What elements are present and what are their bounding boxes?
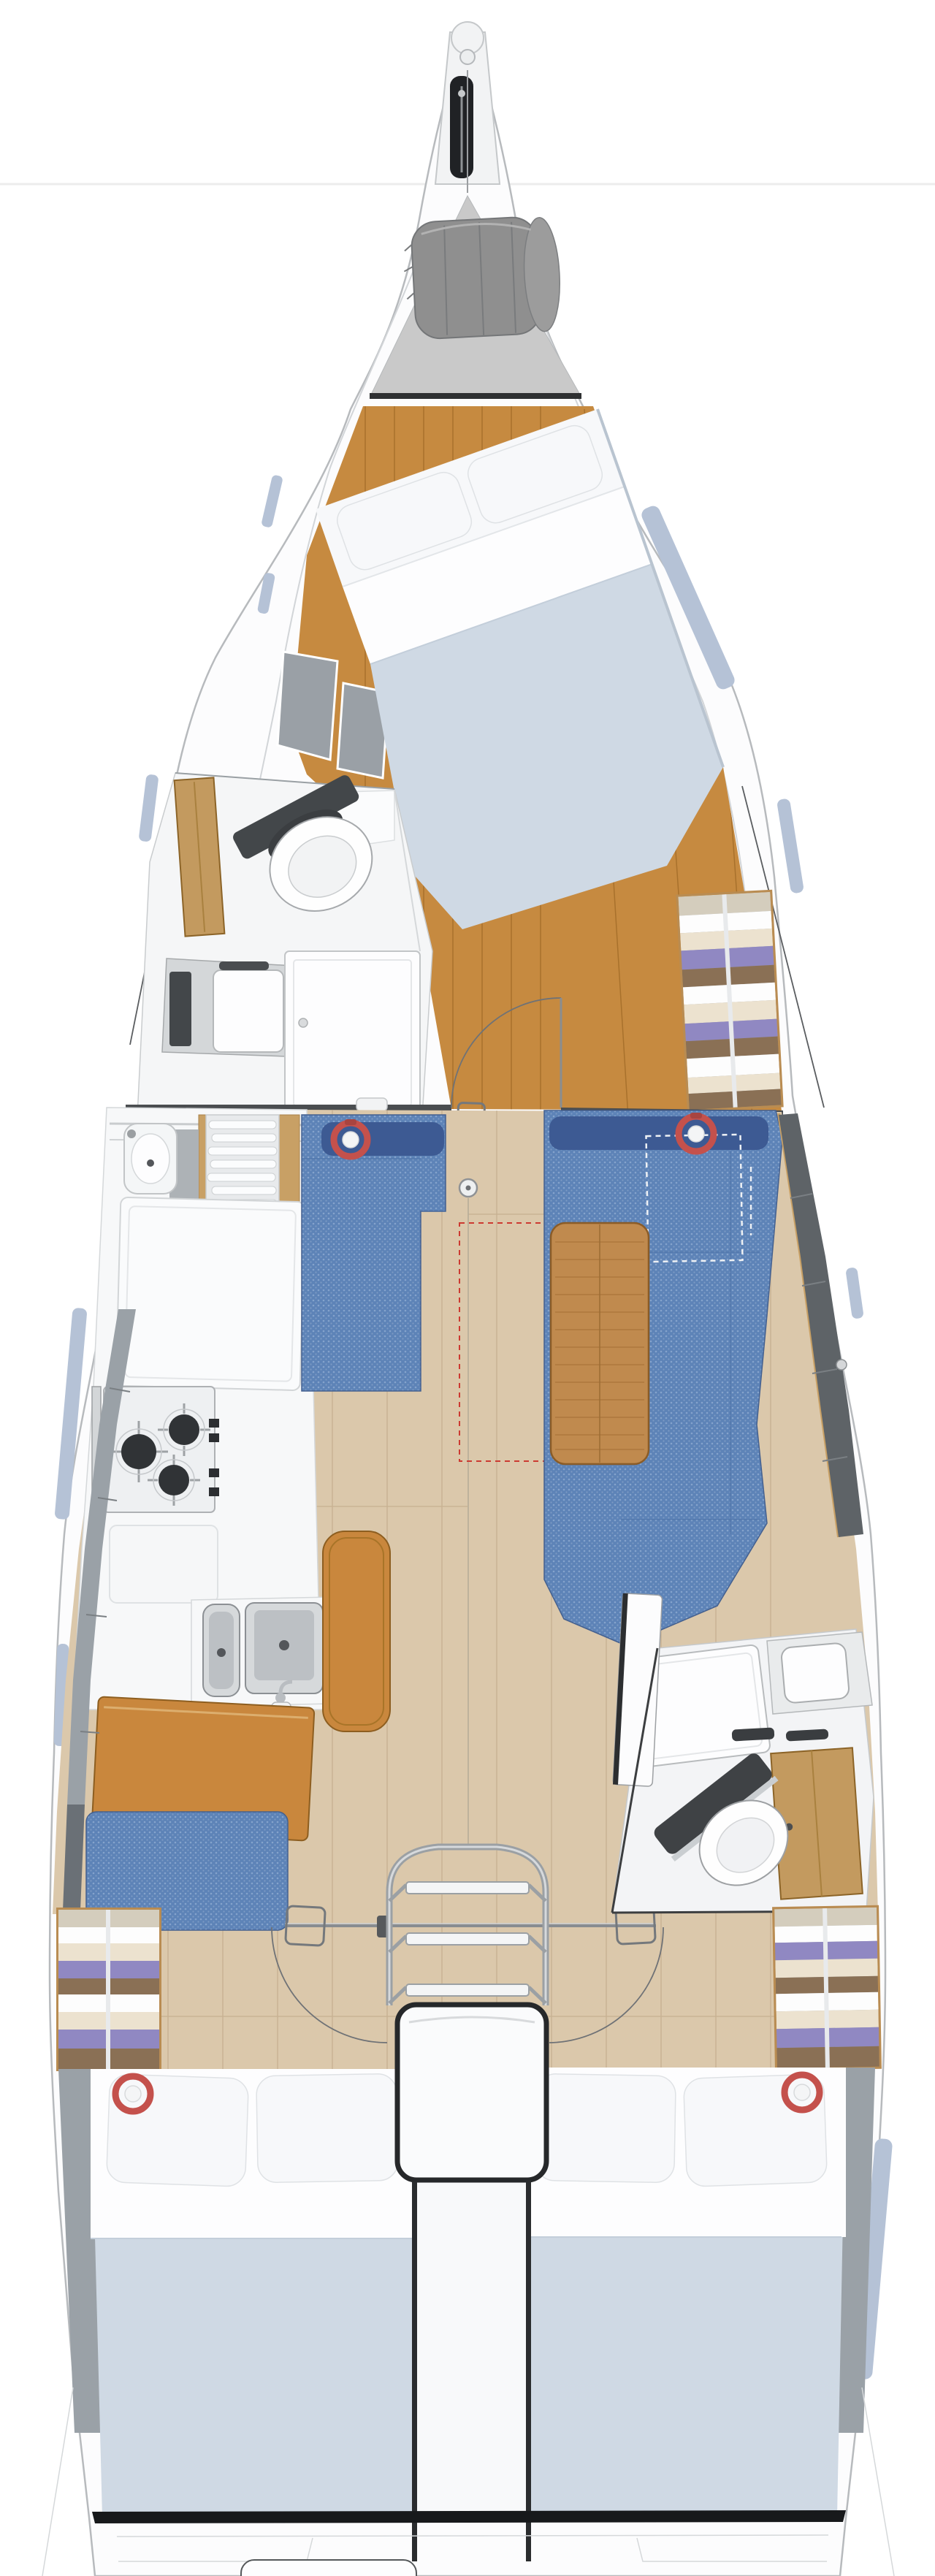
- berth-inner-edge-port: [412, 2181, 417, 2561]
- locker-bulkhead: [370, 393, 581, 399]
- forward-head-faucet: [219, 961, 269, 970]
- aft-wardrobe-starboard: [774, 1908, 879, 2068]
- berth-inner-edge-starboard: [526, 2180, 531, 2561]
- boat-floorplan-page: [0, 0, 935, 2576]
- forward-wardrobe: [678, 892, 781, 1110]
- aft-head: [612, 1593, 874, 1915]
- forward-head: [137, 773, 432, 1116]
- saloon-table: [551, 1223, 649, 1464]
- cushion-button: [836, 1360, 847, 1370]
- aft-head-sink: [781, 1642, 850, 1703]
- starboard-sofa-headrest: [549, 1116, 768, 1150]
- galley-board: [110, 1525, 218, 1603]
- nav-bench: [323, 1531, 390, 1731]
- engine-box: [397, 2005, 546, 2180]
- galley-prep-sink: [124, 1124, 177, 1194]
- aft-berth-starboard: [527, 2068, 846, 2516]
- bow-roller-pin: [460, 50, 475, 64]
- shower-drain: [299, 1018, 308, 1027]
- boat-floorplan-svg: [0, 0, 935, 2576]
- bulkhead-latch: [356, 1098, 387, 1111]
- center-aisle-aft: [417, 2180, 527, 2522]
- liferaft-locker: [241, 2560, 416, 2576]
- aft-wardrobe-port: [58, 1910, 159, 2069]
- sail-bag: [402, 216, 562, 340]
- aft-berth-port: [91, 2069, 415, 2516]
- transom: [92, 2510, 846, 2523]
- galley-worktop: [116, 1197, 305, 1391]
- forward-head-sink: [213, 970, 283, 1052]
- galley-double-sink: [191, 1597, 330, 1715]
